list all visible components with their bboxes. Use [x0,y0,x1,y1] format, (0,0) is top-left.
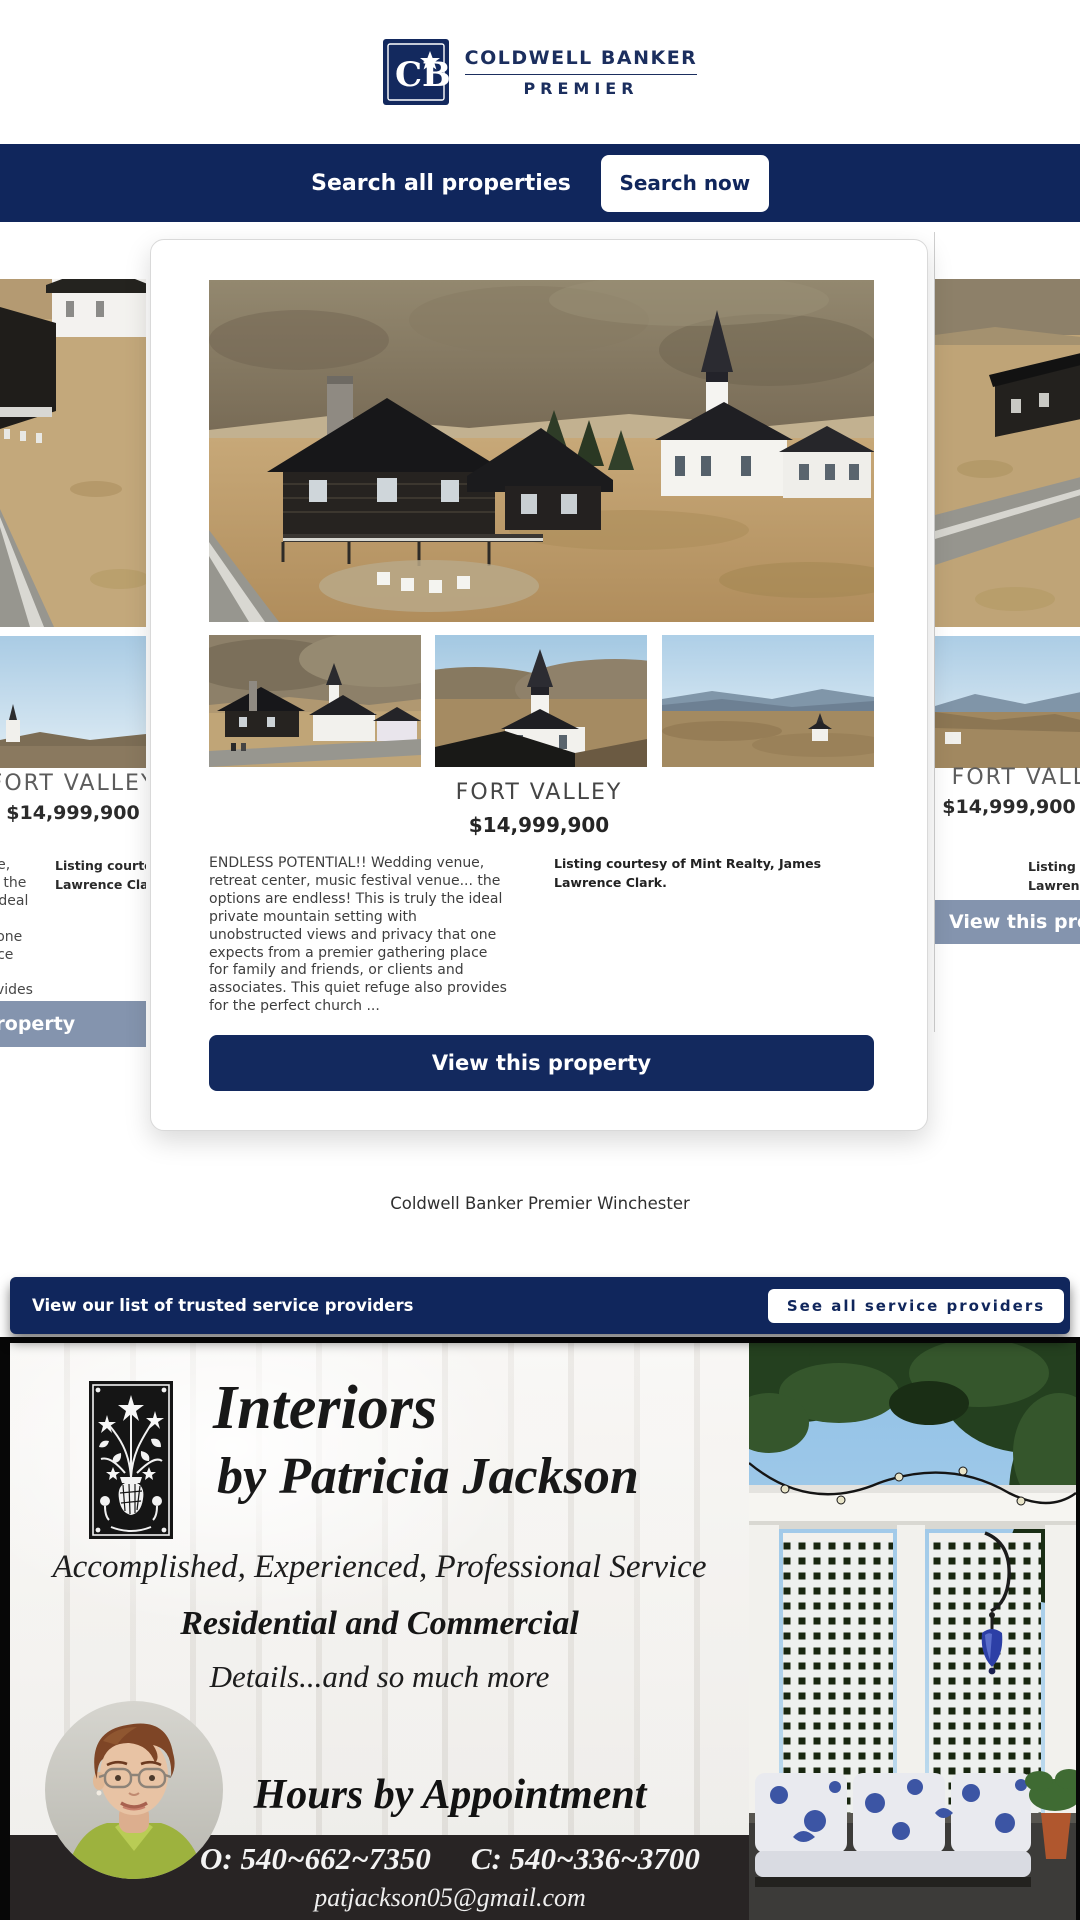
agent-portrait-photo [45,1701,223,1879]
brand-name: COLDWELL BANKER [465,47,698,75]
next-card-courtesy: Listing courtesy of Mint Realty, James L… [1028,858,1080,895]
brand-logo[interactable]: CB COLDWELL BANKER PREMIER [383,39,698,105]
service-providers-bar: View our list of trusted service provide… [10,1277,1070,1334]
ad-brand-subtitle: by Patricia Jackson [217,1447,639,1506]
prev-card-photo[interactable] [0,279,146,627]
next-card-thumbnail-image [935,636,1080,768]
listing-price: $14,999,900 [151,813,927,837]
brand-wordmark: COLDWELL BANKER PREMIER [465,47,698,98]
search-properties-bar: Search all properties Search now [0,144,1080,222]
prev-card-title: FORT VALLEY [0,771,146,796]
prev-card-photo-image [0,279,146,627]
ad-office-phone: O: 540~662~7350 [200,1841,431,1876]
carousel-next-card[interactable]: FORT VALLEY $14,999,900 Listing courtesy… [934,232,1080,1032]
page: CB COLDWELL BANKER PREMIER Search all pr… [0,0,1080,1920]
thumbnail-3-image [662,635,874,767]
ad-subline: Residential and Commercial [10,1605,749,1643]
ad-detail-line: Details...and so much more [10,1659,749,1695]
listing-thumbnail-2[interactable] [435,635,647,767]
prev-card-description: ENDLESS POTENTIAL!! Wedding venue, retre… [0,857,35,1018]
view-property-button[interactable]: View this property [209,1035,874,1091]
ad-tagline: Accomplished, Experienced, Professional … [10,1549,749,1586]
next-card-title: FORT VALLEY [935,765,1080,790]
listing-thumbnail-1[interactable] [209,635,421,767]
aerial-property-image [209,280,874,622]
thumbnail-1-image [209,635,421,767]
ad-email: patjackson05@gmail.com [190,1883,710,1913]
coldwell-banker-cb-icon: CB [383,39,449,105]
ad-cell-phone: C: 540~336~3700 [471,1841,700,1876]
site-header: CB COLDWELL BANKER PREMIER [0,0,1080,144]
prev-card-view-button[interactable]: View this property [0,1001,146,1047]
next-card-thumbnail[interactable] [935,636,1080,768]
prev-card-courtesy: Listing courtesy of Mint Realty, James L… [55,857,146,894]
ad-brand-title: Interiors [213,1373,437,1444]
ad-left-panel: Interiors by Patricia Jackson Accomplish… [10,1343,749,1920]
ad-hours-line: Hours by Appointment [190,1771,710,1819]
search-bar-label: Search all properties [311,171,571,196]
listing-description: ENDLESS POTENTIAL!! Wedding venue, retre… [209,855,509,1016]
ad-phone-numbers: O: 540~662~7350C: 540~336~3700 [190,1841,710,1877]
listing-main-photo[interactable] [209,280,874,622]
listing-title: FORT VALLEY [151,780,927,805]
see-all-service-providers-button[interactable]: See all service providers [768,1289,1064,1323]
porch-photo-image [749,1343,1076,1920]
carousel-prev-card[interactable]: FORT VALLEY $14,999,900 ENDLESS POTENTIA… [0,230,146,1060]
prev-card-thumbnail[interactable] [0,636,146,768]
floral-woodcut-ornament-icon [89,1381,173,1539]
brand-sub-name: PREMIER [523,79,638,98]
ad-porch-photo [749,1343,1076,1920]
listing-courtesy: Listing courtesy of Mint Realty, James L… [554,855,876,892]
next-card-view-button[interactable]: View this property [935,900,1080,944]
next-card-photo-image [935,279,1080,627]
next-card-price: $14,999,900 [934,796,1080,818]
search-now-button[interactable]: Search now [601,155,769,212]
listing-thumbnail-3[interactable] [662,635,874,767]
thumbnail-2-image [435,635,647,767]
prev-card-thumbnail-image [0,636,146,768]
office-name: Coldwell Banker Premier Winchester [0,1194,1080,1213]
interiors-ad-banner[interactable]: Interiors by Patricia Jackson Accomplish… [0,1337,1080,1920]
prev-card-price: $14,999,900 [0,802,146,824]
svg-text:CB: CB [395,55,449,95]
agent-portrait-image [45,1701,223,1879]
next-card-photo[interactable] [935,279,1080,627]
service-providers-label: View our list of trusted service provide… [32,1296,768,1315]
listing-card: FORT VALLEY $14,999,900 ENDLESS POTENTIA… [150,239,928,1131]
